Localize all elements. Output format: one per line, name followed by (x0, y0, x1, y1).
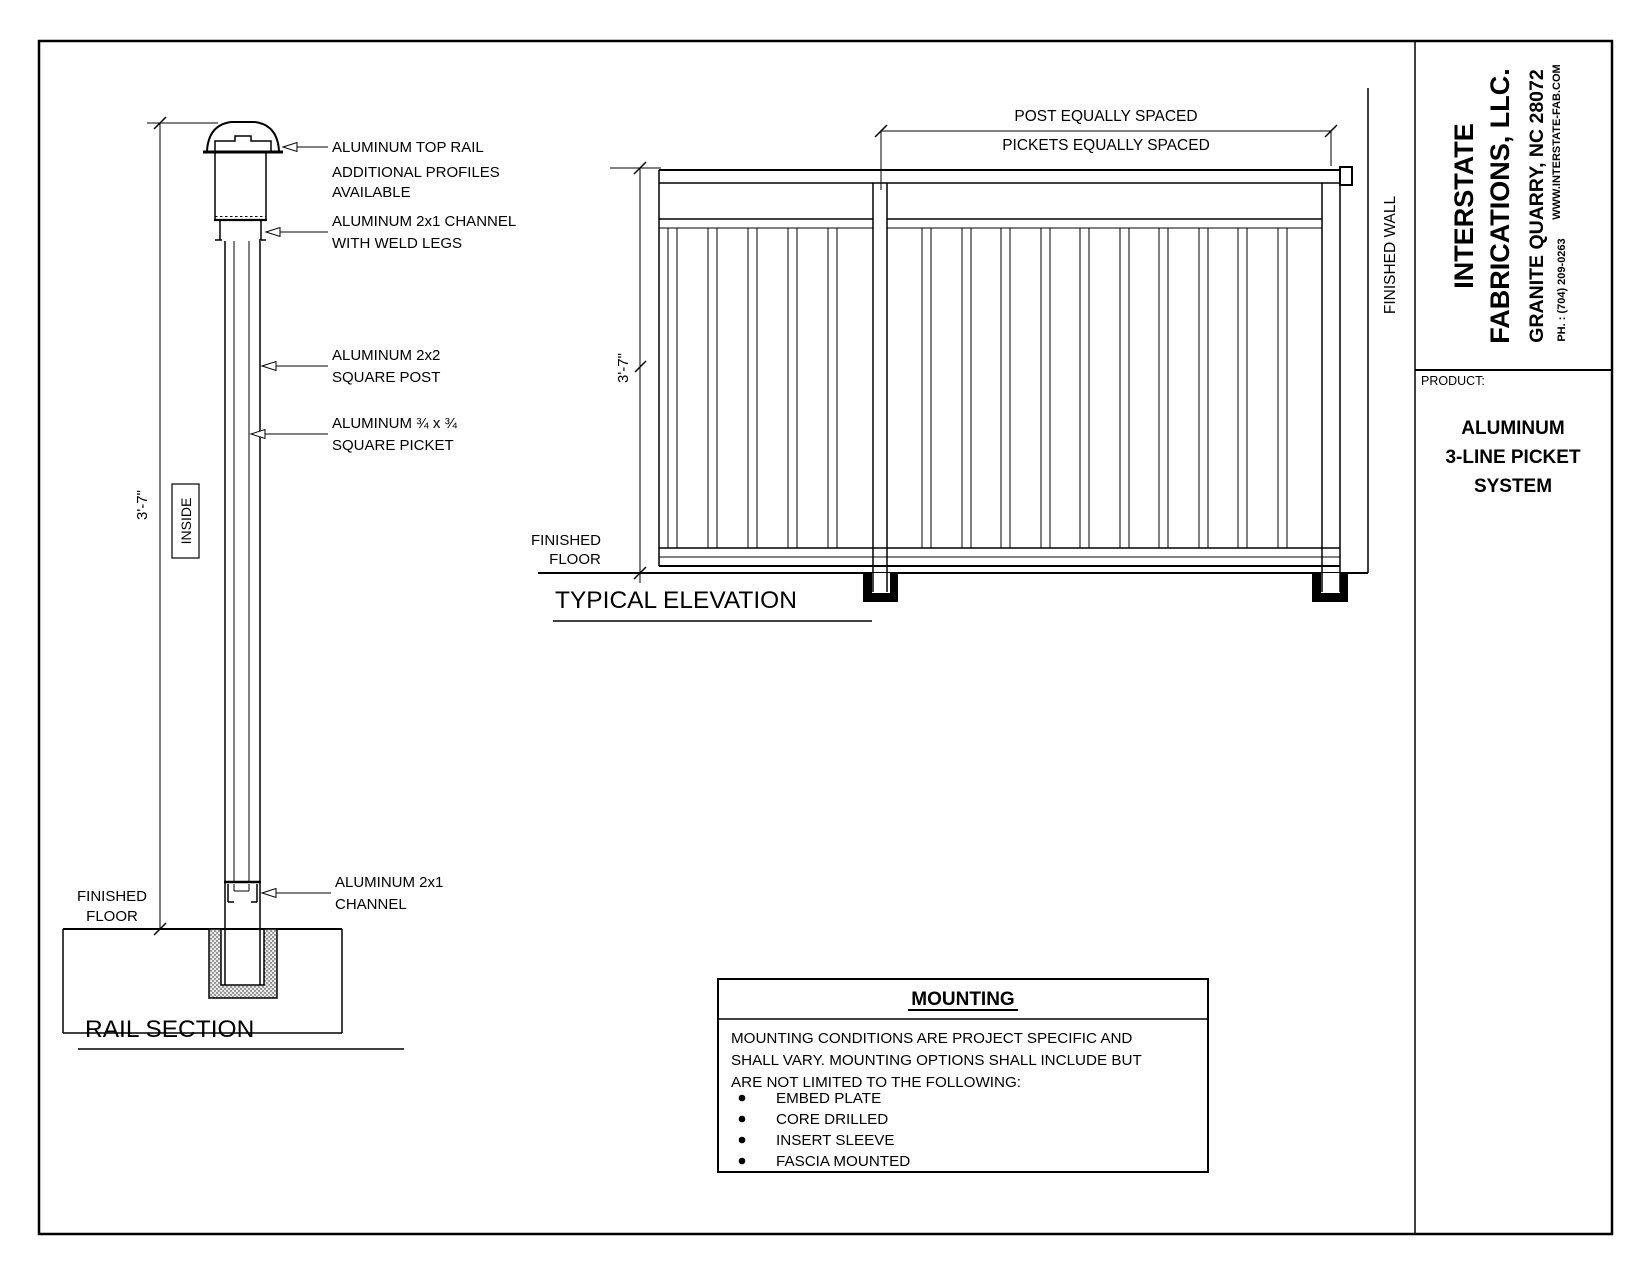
company-phone: PH. : (704) 209-0263 (1556, 238, 1568, 341)
embed-sleeve-hatched (209, 929, 277, 998)
label-picket-line1: ALUMINUM ¾ x ¾ (332, 415, 458, 432)
top-rail-body-profile (215, 152, 266, 219)
elevation-finished-floor-line1: FINISHED (531, 532, 601, 549)
mounting-bullet-3: INSERT SLEEVE (776, 1132, 894, 1149)
mounting-notes-box: MOUNTING MOUNTING CONDITIONS ARE PROJECT… (718, 979, 1208, 1172)
arrow-square-post (262, 362, 328, 371)
picket-spacing-dim-text: PICKETS EQUALLY SPACED (1002, 137, 1210, 154)
elevation-pickets-left-bay (668, 228, 837, 548)
arrow-square-picket (251, 430, 328, 439)
post-section-lines (225, 241, 260, 985)
company-name-line2: FABRICATIONS, LLC. (1485, 68, 1515, 343)
arrow-bottom-channel (262, 889, 331, 898)
mounting-body-line2: SHALL VARY. MOUNTING OPTIONS SHALL INCLU… (731, 1052, 1142, 1069)
label-post-line2: SQUARE POST (332, 369, 440, 386)
mounting-bullet-2: CORE DRILLED (776, 1111, 888, 1128)
label-channel-weld-line2: WITH WELD LEGS (332, 235, 462, 252)
label-bottom-channel-line1: ALUMINUM 2x1 (335, 874, 443, 891)
title-block: INTERSTATE FABRICATIONS, LLC. GRANITE QU… (1415, 64, 1612, 497)
rail-section-labels: ALUMINUM TOP RAIL ADDITIONAL PROFILES AV… (332, 139, 516, 913)
elevation-pickets-right-bay (922, 228, 1287, 548)
elevation-embed-feet (863, 573, 1348, 602)
leader-arrows (251, 143, 331, 898)
company-name-line1: INTERSTATE (1449, 123, 1479, 289)
inside-tag: INSIDE (172, 484, 199, 558)
elevation-finished-floor-line2: FLOOR (549, 551, 601, 568)
label-profiles-line1: ADDITIONAL PROFILES (332, 164, 500, 181)
spacing-dimension (875, 125, 1337, 190)
mounting-body-line1: MOUNTING CONDITIONS ARE PROJECT SPECIFIC… (731, 1030, 1132, 1047)
product-name-line2: 3-LINE PICKET (1445, 447, 1581, 468)
elevation-bottom-channel (659, 548, 1340, 566)
rail-section-drawing: 3'-7" INSIDE (63, 117, 516, 1049)
product-name-line1: ALUMINUM (1461, 418, 1564, 439)
elevation-height-dim-text: 3'-7" (615, 353, 632, 383)
elevation-upper-channel (659, 219, 1322, 228)
label-post-line1: ALUMINUM 2x2 (332, 347, 440, 364)
mounting-body-line3: ARE NOT LIMITED TO THE FOLLOWING: (731, 1074, 1021, 1091)
bottom-channel-profile (224, 882, 261, 902)
arrow-top-rail (283, 143, 328, 152)
mounting-bullet-1: EMBED PLATE (776, 1090, 881, 1107)
cad-drawing: INTERSTATE FABRICATIONS, LLC. GRANITE QU… (0, 0, 1650, 1275)
inside-tag-label: INSIDE (178, 498, 194, 545)
elevation-right-post (1322, 183, 1340, 592)
typical-elevation-title: TYPICAL ELEVATION (555, 587, 797, 614)
arrow-channel-weld (266, 228, 328, 237)
label-picket-line2: SQUARE PICKET (332, 437, 454, 454)
elevation-middle-post (873, 183, 887, 592)
rail-section-finished-floor-line2: FLOOR (86, 908, 138, 925)
product-label: PRODUCT: (1421, 374, 1485, 388)
finished-wall-label: FINISHED WALL (1382, 195, 1399, 314)
label-profiles-line2: AVAILABLE (332, 184, 411, 201)
label-top-rail: ALUMINUM TOP RAIL (332, 139, 484, 156)
label-channel-weld-line1: ALUMINUM 2x1 CHANNEL (332, 213, 516, 230)
channel-weld-legs-profile (214, 217, 267, 241)
rail-section-title: RAIL SECTION (85, 1016, 254, 1043)
company-website: WWW.INTERSTATE-FAB.COM (1551, 64, 1563, 219)
elevation-top-rail (659, 167, 1352, 185)
company-address: GRANITE QUARRY, NC 28072 (1526, 69, 1548, 343)
mounting-title: MOUNTING (911, 989, 1014, 1010)
rail-section-finished-floor-line1: FINISHED (77, 888, 147, 905)
drawing-sheet: INTERSTATE FABRICATIONS, LLC. GRANITE QU… (0, 0, 1650, 1275)
label-bottom-channel-line2: CHANNEL (335, 896, 407, 913)
mounting-bullet-4: FASCIA MOUNTED (776, 1153, 910, 1170)
picket-section-lines (234, 241, 249, 882)
rail-section-height-dim-text: 3'-7" (134, 490, 151, 520)
post-spacing-dim-text: POST EQUALLY SPACED (1014, 108, 1197, 125)
top-rail-cap-profile (203, 122, 283, 152)
typical-elevation-drawing: 3'-7" POST EQUALLY SPACED PICKETS EQUALL… (531, 88, 1399, 621)
product-name-line3: SYSTEM (1474, 476, 1552, 497)
